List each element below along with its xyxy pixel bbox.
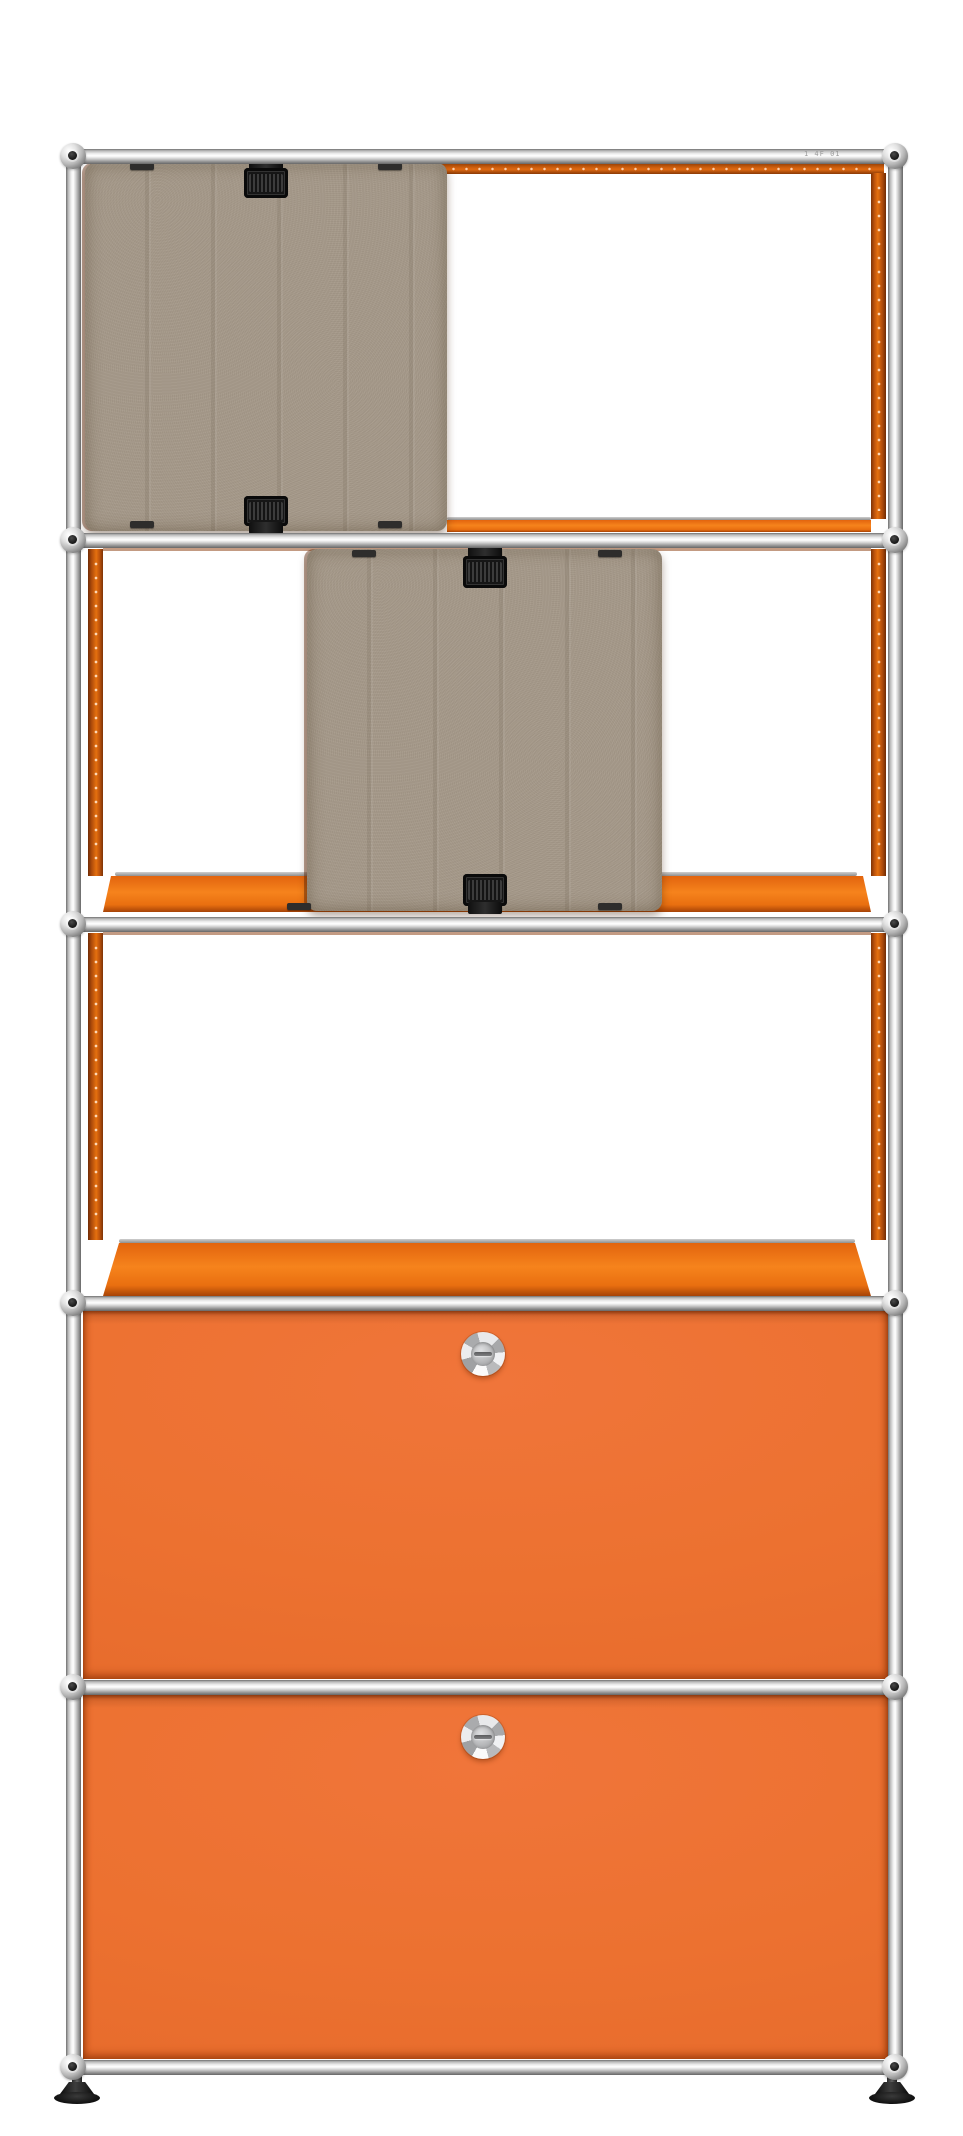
panel-tab — [598, 903, 622, 910]
felt-panel-row1 — [85, 163, 447, 531]
shelving-unit-photo: 1 4F 01 — [0, 0, 963, 2136]
panel-tab — [378, 163, 402, 170]
panel-tab — [352, 550, 376, 557]
frame-tube-horizontal-2 — [66, 533, 903, 548]
ball-connector — [882, 1290, 908, 1316]
panel-tab — [130, 521, 154, 528]
leveling-foot-right — [869, 2092, 915, 2104]
side-panel-edge-row2-left — [88, 549, 103, 876]
ball-connector — [60, 911, 86, 937]
ball-connector — [882, 143, 908, 169]
velcro-clip-row1-top — [244, 168, 288, 198]
velcro-clip-row2-top — [463, 556, 507, 588]
side-panel-edge-row2-right — [871, 549, 886, 876]
frame-tube-horizontal-1 — [66, 149, 903, 164]
frame-tube-vertical-left — [66, 149, 81, 2075]
rear-tube-row3 — [119, 1239, 855, 1243]
felt-panel-row2 — [307, 549, 662, 911]
door-knob-row4 — [461, 1332, 505, 1376]
panel-tab — [598, 550, 622, 557]
frame-tube-horizontal-3 — [66, 917, 903, 932]
ball-connector — [882, 1674, 908, 1700]
perforation-dots — [877, 181, 881, 511]
ball-connector — [882, 527, 908, 553]
ball-connector — [60, 527, 86, 553]
side-panel-edge-row3-right — [871, 933, 886, 1240]
ball-connector — [882, 2054, 908, 2080]
shelf-edge-row1 — [447, 520, 871, 532]
tube-marking: 1 4F 01 — [804, 150, 841, 158]
perforation-dots — [94, 557, 98, 868]
leveling-foot-left — [54, 2092, 100, 2104]
side-panel-edge-row3-left — [88, 933, 103, 1240]
perforation-dots — [877, 941, 881, 1232]
door-knob-row5 — [461, 1715, 505, 1759]
side-panel-edge-row1-right — [871, 173, 886, 519]
ball-connector — [60, 1290, 86, 1316]
panel-tab — [130, 163, 154, 170]
ball-connector — [60, 1674, 86, 1700]
ball-connector — [60, 143, 86, 169]
ball-connector — [882, 911, 908, 937]
panel-tab — [378, 521, 402, 528]
ball-connector — [60, 2054, 86, 2080]
perforation-dots — [94, 941, 98, 1232]
frame-tube-horizontal-5 — [66, 1680, 903, 1695]
frame-tube-horizontal-4 — [66, 1296, 903, 1311]
panel-tab — [287, 903, 311, 910]
shelf-underside-line-row3 — [103, 932, 871, 935]
velcro-strap-row2-bottom — [468, 902, 502, 914]
frame-tube-vertical-right — [888, 149, 903, 2075]
perforation-dots — [877, 557, 881, 868]
shelf-surface-row3 — [103, 1243, 871, 1296]
frame-tube-horizontal-6 — [66, 2060, 903, 2075]
